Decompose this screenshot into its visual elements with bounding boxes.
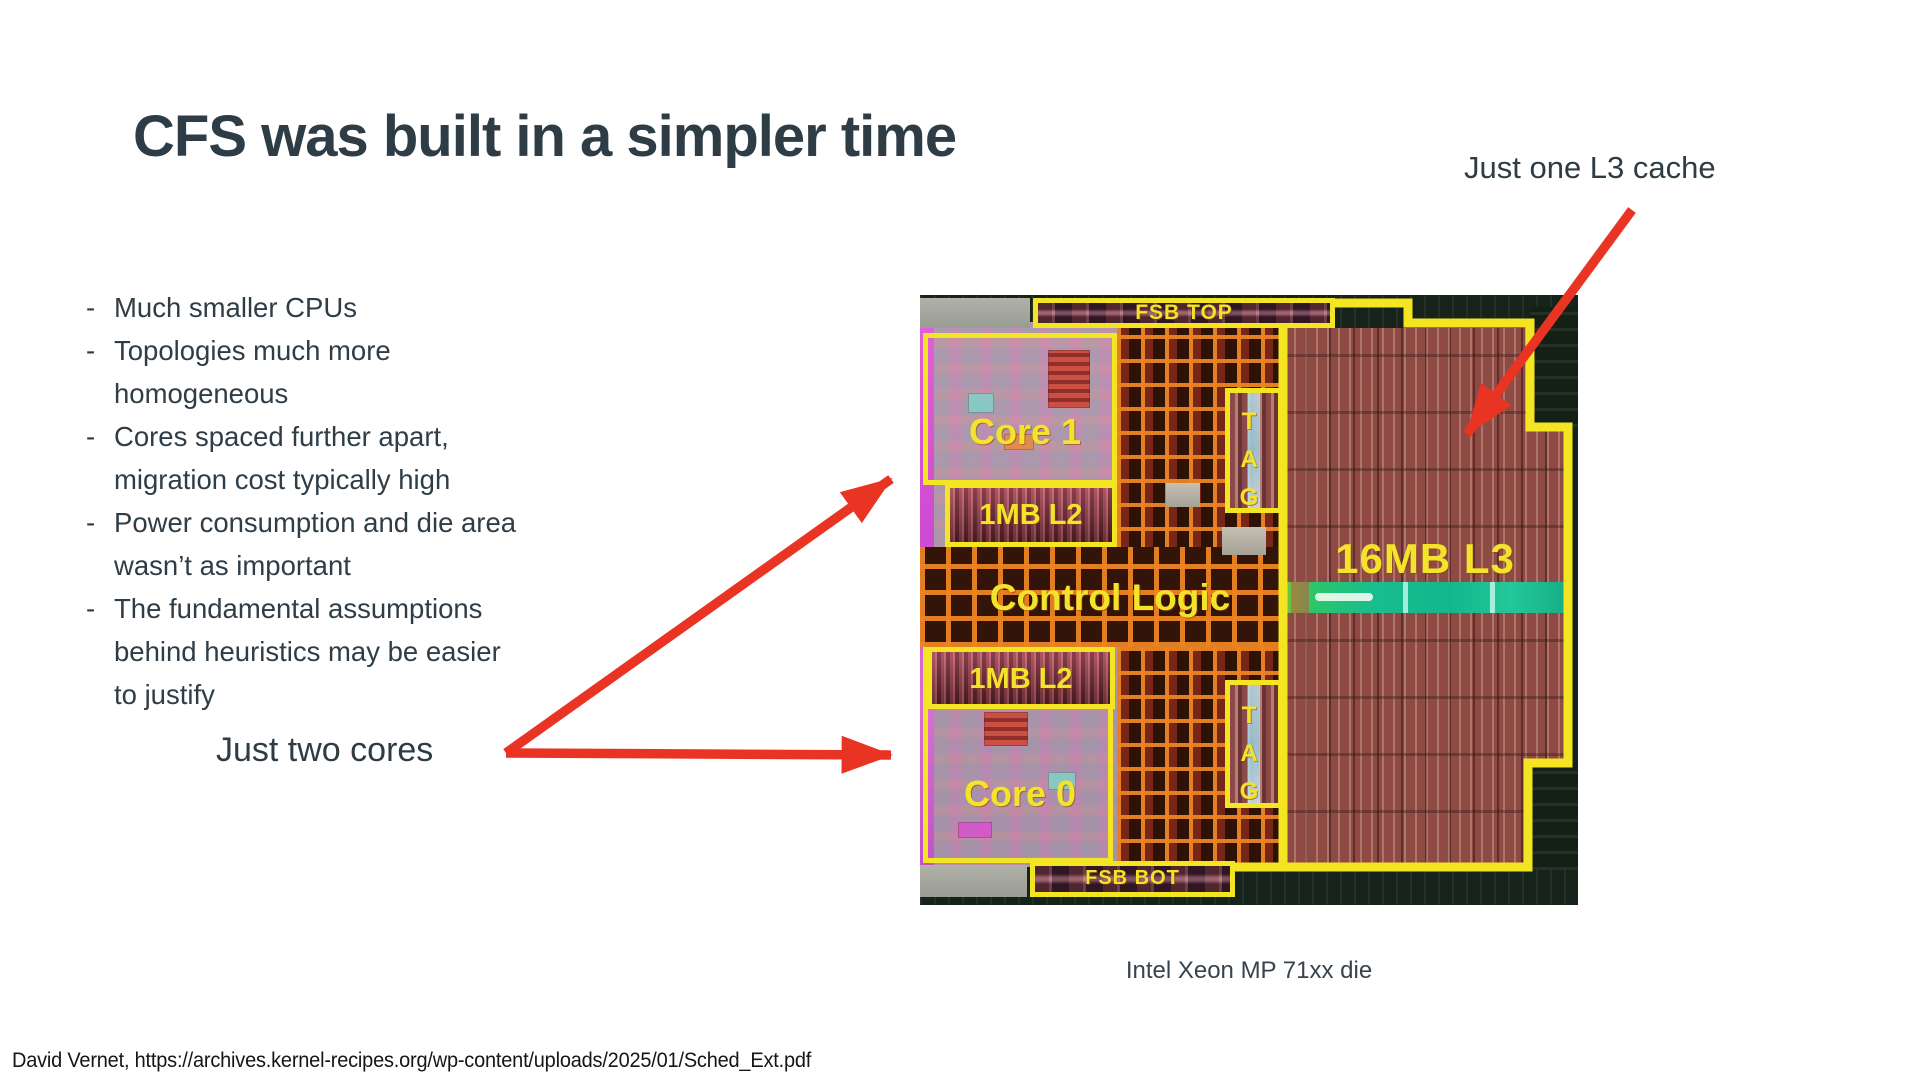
teal-streak	[1315, 593, 1373, 601]
die-dark-corner-top-right	[1530, 307, 1578, 427]
bullet-item: Much smaller CPUs	[84, 286, 526, 329]
die-grey-pad-mid	[1166, 483, 1200, 507]
arrow-two-cores-lower	[506, 753, 891, 755]
die-label-l2-top: 1MB L2	[945, 499, 1117, 532]
die-label-fsb-bot: FSB BOT	[1030, 867, 1235, 890]
teal-streak	[1490, 582, 1495, 613]
annotation-l3-cache: Just one L3 cache	[1464, 150, 1716, 186]
die-label-16mb-l3: 16MB L3	[1290, 535, 1560, 583]
arrow-two-cores-upper	[506, 479, 891, 753]
core-block	[958, 822, 992, 838]
core-block	[984, 712, 1028, 746]
die-label-fsb-top: FSB TOP	[1033, 301, 1335, 325]
die-grey-pad-bottom-left	[920, 865, 1027, 897]
slide: CFS was built in a simpler time Just one…	[0, 0, 1920, 1080]
page-title: CFS was built in a simpler time	[133, 103, 956, 170]
teal-red-patch	[1291, 582, 1309, 613]
die-label-l2-bottom: 1MB L2	[927, 663, 1115, 696]
core-block	[968, 393, 994, 413]
teal-streak	[1403, 582, 1408, 613]
bullet-list: Much smaller CPUs Topologies much more h…	[84, 286, 526, 716]
bullet-item: Topologies much more homogeneous	[84, 329, 526, 415]
die-label-core1: Core 1	[950, 411, 1100, 453]
core1-region-outline	[923, 333, 1117, 485]
core-block	[1048, 350, 1090, 408]
die-caption: Intel Xeon MP 71xx die	[920, 957, 1578, 985]
bullet-item: Cores spaced further apart, migration co…	[84, 415, 526, 501]
die-label-tag-bottom: TAG	[1236, 697, 1262, 811]
footer-attribution: David Vernet, https://archives.kernel-re…	[12, 1049, 811, 1073]
die-label-control-logic: Control Logic	[955, 577, 1265, 619]
die-label-tag-top: TAG	[1236, 403, 1262, 517]
die-grey-pad-top-left	[920, 298, 1030, 328]
die-label-core0: Core 0	[945, 773, 1095, 815]
annotation-two-cores: Just two cores	[216, 731, 433, 770]
die-dark-corner-bottom-right	[1528, 763, 1578, 870]
die-grey-pad-center	[1222, 527, 1266, 555]
bullet-item: The fundamental assumptions behind heuri…	[84, 587, 526, 716]
bullet-item: Power consumption and die area wasn’t as…	[84, 501, 526, 587]
die-photo: FSB TOP Core 1 1MB L2 Control Logic 16MB…	[920, 295, 1578, 905]
l3-teal-stripe	[1285, 582, 1568, 613]
